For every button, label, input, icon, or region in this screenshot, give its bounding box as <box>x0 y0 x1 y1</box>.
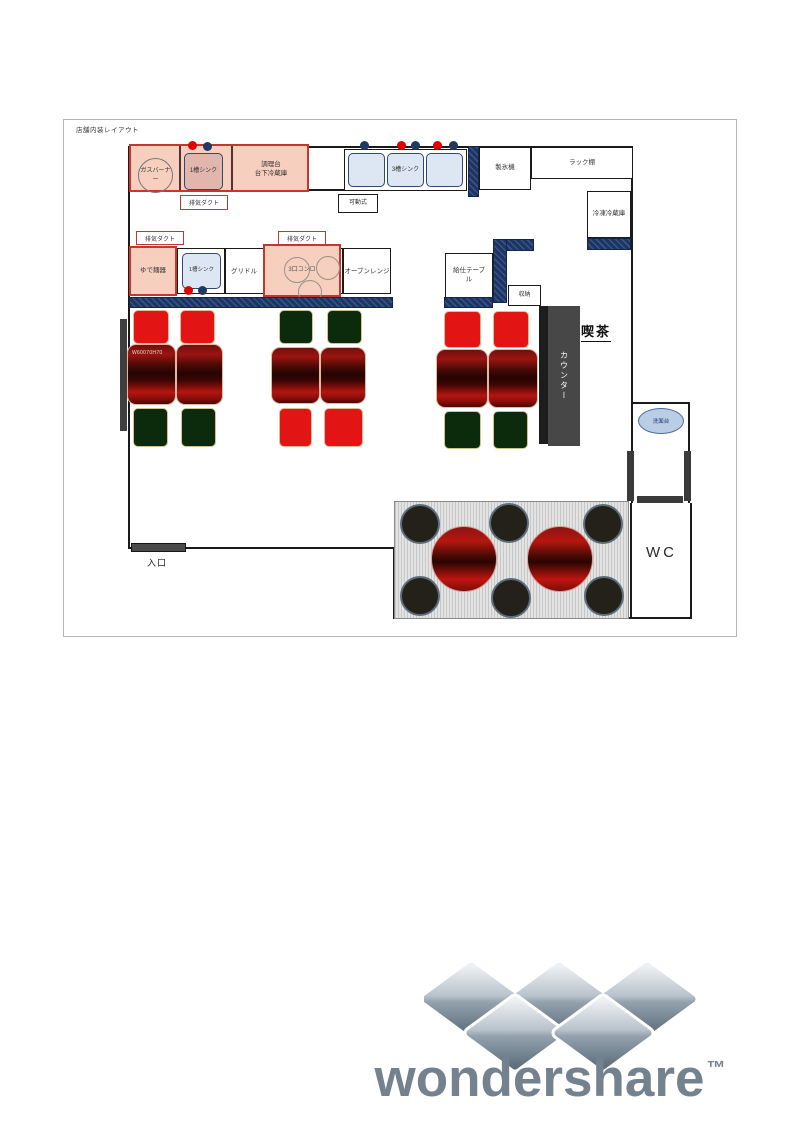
dining-table <box>176 344 223 405</box>
knob-navy-dot-icon <box>198 286 207 295</box>
oven-range: オーブンレンジ <box>344 253 390 291</box>
chair-red <box>279 408 312 447</box>
stool <box>400 504 440 544</box>
wall-serving-front <box>444 297 493 308</box>
chair-red <box>444 311 481 348</box>
knob-red-dot-icon <box>188 141 197 150</box>
knob-red-dot-icon <box>184 286 193 295</box>
window-bar <box>120 319 127 431</box>
noodle-boiler: ゆで麺器 <box>129 246 177 296</box>
chair-red <box>324 408 363 447</box>
table-size-label: W60070H70 <box>132 350 163 356</box>
sink-1-top-label: 1槽シンク <box>190 167 217 175</box>
chair-green <box>133 408 168 447</box>
rack-shelf-label: ラック棚 <box>569 159 595 168</box>
prep-table-line2: 台下冷蔵庫 <box>255 170 288 179</box>
ice-machine-label: 製氷機 <box>495 164 515 173</box>
sink-3-bay: 3槽シンク <box>387 153 424 187</box>
wall-l-vertical <box>493 239 507 303</box>
stool <box>489 503 529 543</box>
chair-green <box>327 310 362 344</box>
stool <box>583 504 623 544</box>
dining-table <box>320 347 366 404</box>
noodle-boiler-label: ゆで麺器 <box>140 267 166 276</box>
chair-green <box>279 310 313 344</box>
dining-table <box>436 349 488 408</box>
unit-divider <box>231 146 233 190</box>
sink-3-label: 3槽シンク <box>392 166 419 174</box>
wc-door-bar <box>637 496 683 503</box>
unit-divider <box>179 146 181 190</box>
movable-text: 可動式 <box>349 199 367 207</box>
ice-machine: 製氷機 <box>479 147 531 190</box>
sink-3-bay <box>348 153 385 187</box>
chair-green <box>444 411 481 449</box>
serving-table: 給仕テーブル <box>445 253 493 298</box>
wall-wc-left <box>630 503 632 619</box>
counter: カウンター <box>548 306 580 446</box>
stove-3-label: 3口コンロ <box>288 266 315 274</box>
kitchen-front-wall <box>129 297 393 308</box>
sink-1-cookline: 1槽シンク <box>182 253 221 289</box>
freezer: 冷凍冷蔵庫 <box>587 191 631 238</box>
logo-tm-text: ™ <box>706 1058 725 1080</box>
movable-label-box: 可動式 <box>338 194 378 213</box>
sink-3-unit: 3槽シンク <box>344 149 467 191</box>
griddle: グリドル <box>224 249 264 295</box>
gas-burner-label: ガスバーナー <box>139 167 172 183</box>
wall-wc-right <box>690 503 692 619</box>
logo-wordmark: wondershare ™ <box>348 1052 752 1105</box>
exhaust-duct-label-top: 排気ダクト <box>180 195 228 210</box>
stool <box>491 578 531 618</box>
entrance-label: 入口 <box>147 556 167 569</box>
griddle-label: グリドル <box>231 268 257 277</box>
knob-red-dot-icon <box>433 141 442 150</box>
rack-shelf: ラック棚 <box>531 147 633 179</box>
plan-title: 店舗内装レイアウト <box>76 124 139 134</box>
storage-box: 収納 <box>508 285 541 306</box>
gas-burner: ガスバーナー <box>138 158 173 193</box>
counter-label: カウンター <box>559 351 570 401</box>
knob-red-dot-icon <box>397 141 406 150</box>
door-post-left <box>627 451 634 501</box>
chair-red <box>493 311 529 348</box>
round-table <box>431 526 497 592</box>
knob-navy-dot-icon <box>411 141 420 150</box>
door-post-right <box>684 451 691 501</box>
washstand-label: 洗面台 <box>653 417 670 425</box>
sink-3-bay <box>426 153 463 187</box>
sink-1-cookline-label: 1槽シンク <box>189 267 214 274</box>
dining-table <box>488 349 538 408</box>
chair-red <box>180 310 215 344</box>
round-table <box>527 526 593 592</box>
storage-label: 収納 <box>518 291 530 299</box>
burner-ring-icon <box>316 256 340 280</box>
prep-table: 調理台 台下冷蔵庫 <box>234 155 308 185</box>
knob-navy-dot-icon <box>203 142 212 151</box>
page: 店舗内装レイアウト 洗面台 入口 ガスバーナー 1槽シンク <box>0 0 795 1123</box>
exhaust-duct-text: 排気ダクト <box>145 234 175 243</box>
cafe-label: 喫茶 <box>581 321 611 342</box>
freezer-label: 冷凍冷蔵庫 <box>593 210 626 219</box>
washstand: 洗面台 <box>638 408 684 434</box>
chair-green <box>493 411 528 449</box>
prep-table-line1: 調理台 <box>261 161 281 170</box>
stool <box>400 576 440 616</box>
exhaust-duct-text: 排気ダクト <box>287 234 317 243</box>
logo-brand-text: wondershare <box>375 1052 705 1105</box>
exhaust-duct-text: 排気ダクト <box>189 198 219 207</box>
hot-station-unit: ガスバーナー 1槽シンク 調理台 台下冷蔵庫 <box>129 144 309 192</box>
entrance-door <box>131 543 186 552</box>
dining-table <box>271 347 320 404</box>
sink-1-top: 1槽シンク <box>184 153 223 190</box>
stool <box>584 576 624 616</box>
chair-red <box>133 310 169 344</box>
wc-label: WC <box>634 544 689 561</box>
knob-navy-dot-icon <box>360 141 369 150</box>
counter-edge-line <box>309 189 346 191</box>
exhaust-duct-label-mid: 排気ダクト <box>278 231 326 245</box>
wall-stub-freezer <box>587 238 631 250</box>
chair-green <box>181 408 216 447</box>
wall-pillar <box>468 146 479 197</box>
serving-table-label: 給仕テーブル <box>452 267 486 285</box>
dining-table: W60070H70 <box>127 344 176 405</box>
oven-range-label: オーブンレンジ <box>344 268 389 277</box>
floor-plan: 店舗内装レイアウト 洗面台 入口 ガスバーナー 1槽シンク <box>63 119 737 637</box>
knob-navy-dot-icon <box>449 141 458 150</box>
stove-3-burner: 3口コンロ <box>263 244 341 297</box>
exhaust-duct-label-left: 排気ダクト <box>136 231 184 245</box>
